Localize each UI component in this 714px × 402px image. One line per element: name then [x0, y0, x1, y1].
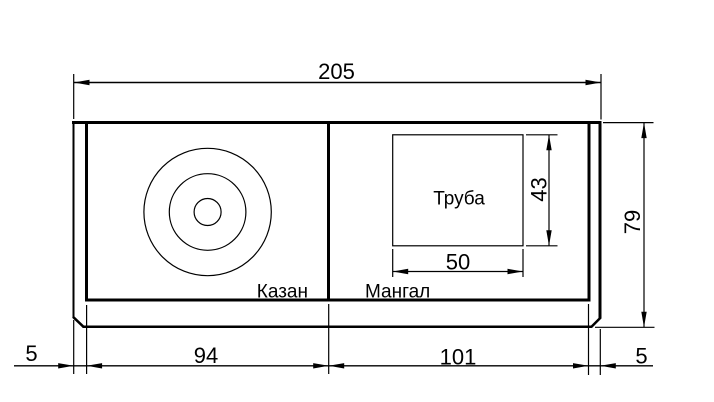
svg-text:101: 101	[440, 345, 477, 370]
svg-text:50: 50	[446, 250, 470, 275]
svg-text:205: 205	[318, 59, 355, 84]
svg-text:Казан: Казан	[257, 282, 308, 303]
svg-text:5: 5	[635, 344, 647, 369]
svg-text:94: 94	[194, 343, 218, 368]
svg-text:43: 43	[527, 177, 552, 201]
svg-text:5: 5	[25, 341, 37, 366]
svg-text:Мангал: Мангал	[365, 282, 430, 303]
svg-text:79: 79	[620, 210, 645, 234]
svg-text:Труба: Труба	[433, 189, 485, 210]
